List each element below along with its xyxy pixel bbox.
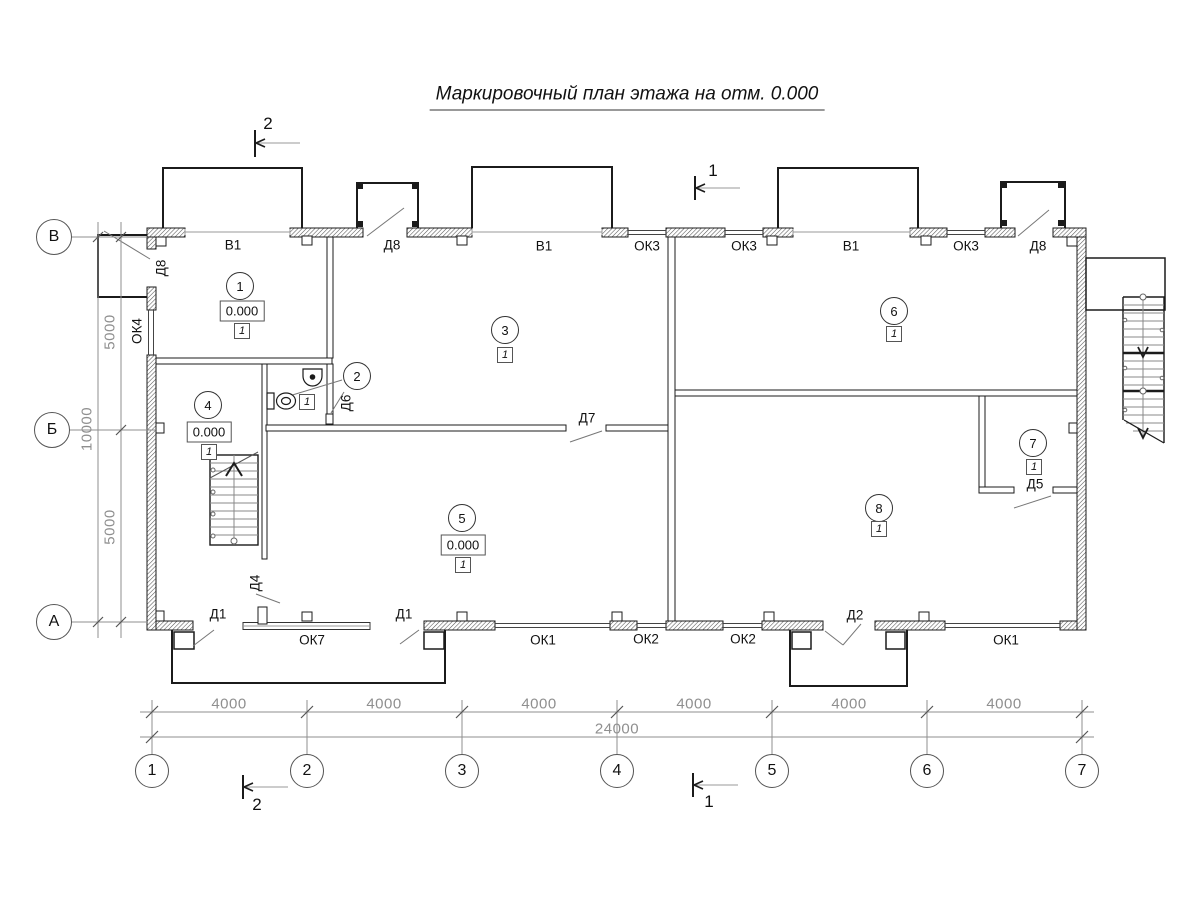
elevation-mark: 0.000 [441,535,486,556]
opening-label: ОК7 [299,633,325,647]
opening-label: Д8 [384,238,401,252]
dimension-value: 5000 [103,314,118,349]
opening-label: ОК2 [730,632,756,646]
finish-mark: 1 [886,326,902,342]
opening-label: В1 [225,238,242,252]
opening-label: ОК1 [993,633,1019,647]
elevation-mark: 0.000 [187,422,232,443]
opening-label: Д2 [847,608,864,622]
opening-label: ОК2 [633,632,659,646]
opening-label: Д1 [396,607,413,621]
opening-label: Д4 [248,575,262,592]
dimension-value: 5000 [103,509,118,544]
axis-bubble-1: 1 [135,754,169,788]
opening-label: ОК1 [530,633,556,647]
door-leaf-d4 [258,607,267,624]
opening-label: В1 [843,239,860,253]
room-number: 4 [194,391,222,419]
finish-mark: 1 [299,394,315,410]
room-number: 7 [1019,429,1047,457]
toilet-icon [267,393,296,409]
opening-label: Д5 [1027,477,1044,491]
axis-bubble-3: 3 [445,754,479,788]
opening-label: Д8 [154,260,168,277]
opening-label: Д7 [579,411,596,425]
opening-label: В1 [536,239,553,253]
room-number: 5 [448,504,476,532]
room-number: 6 [880,297,908,325]
drawing-title: Маркировочный план этажа на отм. 0.000 [430,84,825,111]
axis-bubble-7: 7 [1065,754,1099,788]
opening-label: Д6 [339,395,353,412]
axis-bubble-a: А [36,604,72,640]
porches [98,167,1065,686]
opening-label: ОК4 [130,318,144,344]
room-number: 2 [343,362,371,390]
axis-bubble-6: 6 [910,754,944,788]
section-mark-2-top: 2 [263,114,272,134]
room-number: 1 [226,272,254,300]
opening-label: ОК3 [731,239,757,253]
dimension-value: 10000 [80,407,95,451]
opening-label: ОК3 [634,239,660,253]
room-number: 3 [491,316,519,344]
finish-mark: 1 [234,323,250,339]
finish-mark: 1 [1026,459,1042,475]
opening-label: Д1 [210,607,227,621]
porch-posts [357,182,1064,227]
interior-walls [156,237,1077,624]
dimension-value: 4000 [676,697,711,712]
finish-mark: 1 [497,347,513,363]
opening-label: ОК3 [953,239,979,253]
floor-plan-page: Маркировочный план этажа на отм. 0.000 2… [0,0,1200,900]
staircase-exterior [1086,258,1165,443]
sink-icon [303,369,322,386]
finish-mark: 1 [871,521,887,537]
dimension-value: 4000 [366,697,401,712]
axis-bubble-4: 4 [600,754,634,788]
section-mark-1-bottom: 1 [704,792,713,812]
dimension-total: 24000 [595,722,639,737]
staircase-interior [210,452,258,545]
finish-mark: 1 [201,444,217,460]
dimension-value: 4000 [986,697,1021,712]
dimension-value: 4000 [211,697,246,712]
opening-label: Д8 [1030,239,1047,253]
axis-bubble-v: В [36,219,72,255]
dimension-value: 4000 [521,697,556,712]
door-leaf-d6 [326,414,333,424]
finish-mark: 1 [455,557,471,573]
section-mark-2-bottom: 2 [252,795,261,815]
room-number: 8 [865,494,893,522]
axis-bubble-b: Б [34,412,70,448]
dimension-value: 4000 [831,697,866,712]
axis-bubble-2: 2 [290,754,324,788]
section-mark-1-top: 1 [708,161,717,181]
axis-bubble-5: 5 [755,754,789,788]
elevation-mark: 0.000 [220,301,265,322]
